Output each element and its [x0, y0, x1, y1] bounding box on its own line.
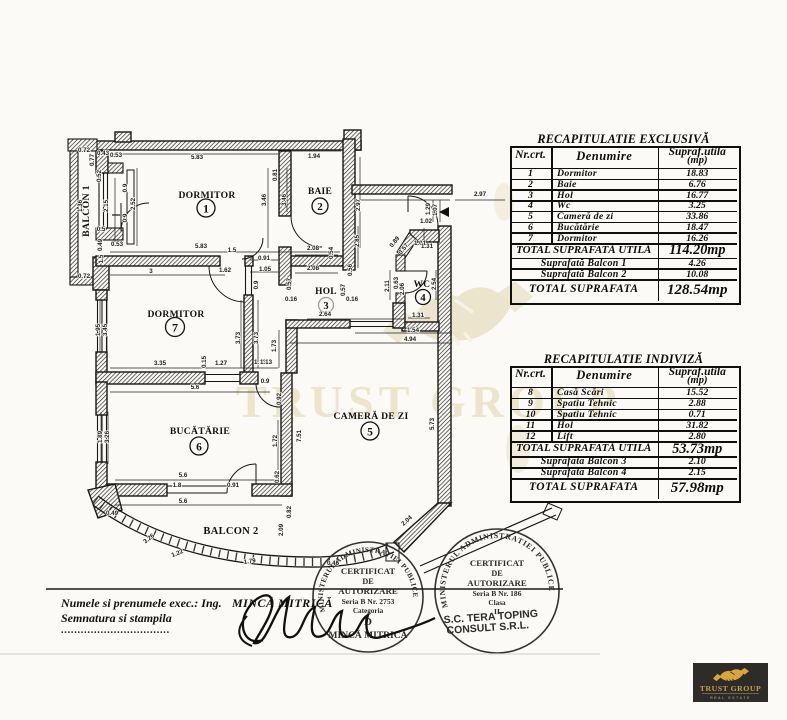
svg-text:1.73: 1.73 [271, 339, 278, 352]
svg-text:4.94: 4.94 [404, 336, 417, 343]
svg-text:5.83: 5.83 [195, 243, 208, 250]
svg-text:1.31: 1.31 [412, 312, 425, 319]
svg-text:Seria B Nr. 2753: Seria B Nr. 2753 [342, 597, 395, 606]
svg-text:0.57: 0.57 [286, 277, 293, 290]
svg-text:1: 1 [203, 202, 209, 216]
svg-text:1.27: 1.27 [215, 360, 228, 367]
svg-text:3.46: 3.46 [281, 193, 288, 206]
svg-text:1.5: 1.5 [98, 254, 105, 263]
svg-text:REAL ESTATE: REAL ESTATE [710, 696, 751, 700]
svg-text:1.5: 1.5 [228, 247, 237, 254]
svg-text:2.11: 2.11 [384, 280, 391, 292]
svg-text:1.05: 1.05 [259, 266, 272, 273]
svg-text:MINCĂ MITRICĂ: MINCĂ MITRICĂ [231, 596, 333, 610]
svg-text:7: 7 [172, 321, 178, 335]
svg-text:0.54: 0.54 [328, 246, 335, 259]
svg-text:0.82: 0.82 [286, 505, 293, 518]
svg-text:0.5: 0.5 [97, 226, 106, 233]
svg-text:3.35: 3.35 [154, 360, 167, 367]
svg-text:1.02: 1.02 [420, 218, 433, 225]
svg-text:1.72: 1.72 [272, 434, 279, 447]
svg-text:0.62: 0.62 [274, 470, 281, 483]
svg-text:AUTORIZARE: AUTORIZARE [338, 586, 398, 596]
svg-text:0.57: 0.57 [340, 283, 347, 296]
svg-text:WC: WC [414, 280, 431, 290]
svg-text:HOL: HOL [315, 287, 337, 297]
svg-text:1.07: 1.07 [432, 203, 439, 216]
svg-text:3.26: 3.26 [104, 430, 111, 443]
svg-text:0.72: 0.72 [78, 147, 91, 154]
svg-text:0.91: 0.91 [227, 482, 240, 489]
svg-text:5.83: 5.83 [191, 154, 204, 161]
svg-text:1.62: 1.62 [219, 267, 232, 274]
svg-text:7.51: 7.51 [296, 429, 303, 442]
svg-text:3.73: 3.73 [253, 331, 260, 344]
svg-text:Clasa: Clasa [488, 599, 506, 607]
svg-text:5.6: 5.6 [191, 384, 200, 391]
svg-text:1.8: 1.8 [173, 482, 182, 489]
svg-text:Seria B Nr. 186: Seria B Nr. 186 [472, 589, 521, 598]
svg-text:1.54: 1.54 [407, 327, 420, 334]
svg-text:AUTORIZARE: AUTORIZARE [467, 578, 527, 588]
svg-text:0.77: 0.77 [89, 153, 96, 166]
svg-text:DE: DE [362, 577, 374, 586]
svg-text:3.46: 3.46 [261, 193, 268, 206]
svg-text:0.43: 0.43 [97, 150, 110, 157]
svg-text:Numele si prenumele exec.: Ing: Numele si prenumele exec.: Ing. [60, 596, 222, 610]
svg-text:Semnatura si stampila: Semnatura si stampila [61, 611, 172, 625]
svg-text:DE: DE [491, 569, 503, 578]
svg-text:5.6: 5.6 [179, 498, 188, 505]
svg-text:5.6: 5.6 [179, 472, 188, 479]
svg-text:BAIE: BAIE [308, 187, 332, 197]
svg-text:1.31: 1.31 [421, 243, 434, 250]
svg-text:BUCĂTĂRIE: BUCĂTĂRIE [170, 425, 230, 437]
svg-text:4: 4 [420, 293, 426, 304]
svg-text:0.16: 0.16 [346, 296, 359, 303]
svg-text:0.15: 0.15 [201, 355, 208, 368]
svg-text:0.81: 0.81 [272, 168, 279, 181]
svg-text:6: 6 [196, 442, 202, 454]
svg-text:2.85: 2.85 [354, 234, 361, 247]
svg-text:CAMERĂ DE ZI: CAMERĂ DE ZI [333, 410, 408, 422]
svg-text:2.64: 2.64 [319, 311, 332, 318]
svg-text:1.36: 1.36 [77, 199, 84, 212]
svg-text:2.52: 2.52 [130, 197, 137, 210]
svg-text:TRUST GROUP: TRUST GROUP [700, 684, 761, 693]
svg-text:5.73: 5.73 [429, 417, 436, 430]
svg-text:3.45: 3.45 [102, 323, 109, 336]
svg-text:1.95: 1.95 [95, 323, 102, 336]
svg-text:2.54: 2.54 [431, 277, 438, 290]
svg-text:0.9: 0.9 [122, 213, 129, 222]
svg-text:0.53: 0.53 [110, 152, 123, 159]
svg-text:2.15: 2.15 [103, 199, 110, 212]
svg-text:0.52: 0.52 [96, 169, 103, 182]
svg-text:0.16: 0.16 [285, 296, 298, 303]
svg-text:2.09: 2.09 [278, 523, 285, 536]
svg-text:1.94: 1.94 [308, 153, 321, 160]
svg-text:0.49: 0.49 [97, 238, 104, 251]
svg-text:0.56: 0.56 [347, 263, 354, 276]
svg-text:2.06: 2.06 [399, 282, 406, 295]
svg-text:1.29: 1.29 [425, 202, 432, 215]
svg-text:BALCON 2: BALCON 2 [203, 526, 258, 537]
svg-text:CERTIFICAT: CERTIFICAT [341, 566, 395, 576]
svg-text:2: 2 [317, 201, 323, 213]
svg-text:3.73: 3.73 [235, 331, 242, 344]
svg-text:5: 5 [367, 427, 373, 439]
svg-text:2.97: 2.97 [474, 191, 487, 198]
svg-text:0.9: 0.9 [253, 280, 260, 289]
svg-text:DORMITOR: DORMITOR [147, 309, 205, 320]
svg-text:0.91: 0.91 [258, 255, 271, 262]
svg-text:CERTIFICAT: CERTIFICAT [470, 558, 524, 568]
svg-text:2.97: 2.97 [355, 198, 362, 211]
svg-text:0.9: 0.9 [122, 183, 129, 192]
svg-text:..............................: ................................. [61, 625, 170, 636]
svg-text:2.08: 2.08 [307, 245, 320, 252]
svg-text:2.08: 2.08 [307, 265, 320, 272]
svg-text:1.13: 1.13 [260, 359, 273, 366]
svg-text:1.89: 1.89 [97, 430, 104, 443]
svg-text:0.72: 0.72 [78, 273, 91, 280]
svg-text:3: 3 [149, 268, 153, 275]
svg-text:0.92: 0.92 [276, 392, 283, 405]
svg-text:0.9: 0.9 [261, 378, 270, 385]
svg-text:0.49: 0.49 [106, 510, 119, 517]
svg-text:0.53: 0.53 [111, 241, 124, 248]
